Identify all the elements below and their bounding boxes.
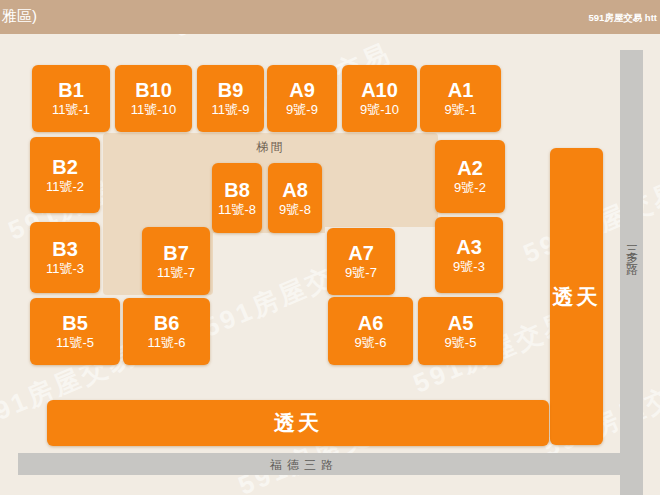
unit-name: A1: [448, 79, 474, 102]
road-right-label: 三多二路: [624, 236, 639, 260]
unit-block-b2[interactable]: B211號-2: [30, 137, 100, 213]
unit-block-a6[interactable]: A69號-6: [328, 297, 413, 365]
unit-number-label: 11號-10: [131, 102, 176, 118]
unit-number-label: 11號-7: [157, 265, 195, 281]
unit-name: A3: [456, 236, 482, 259]
unit-name: B5: [62, 312, 88, 335]
unit-name: B1: [58, 79, 84, 102]
unit-name: B2: [52, 156, 78, 179]
header-title: 雅區): [2, 7, 37, 26]
road-bottom-label: 福德三路: [270, 457, 338, 474]
unit-name: A2: [457, 157, 483, 180]
unit-number-label: 9號-1: [445, 102, 477, 118]
unit-number-label: 11號-8: [218, 202, 256, 218]
unit-name: B10: [135, 79, 172, 102]
header-bar: 雅區) 591房屋交易 htt: [0, 0, 660, 34]
unit-name: A10: [361, 79, 398, 102]
unit-block-a9[interactable]: A99號-9: [267, 65, 337, 132]
unit-name: B3: [52, 238, 78, 261]
unit-block-a3[interactable]: A39號-3: [435, 217, 503, 293]
site-map: 591房屋交易591房屋交易591房屋交易591房屋交易591房屋交易591房屋…: [0, 0, 660, 495]
unit-block-b10[interactable]: B1011號-10: [115, 65, 192, 132]
unit-name: B9: [218, 79, 244, 102]
unit-name: B8: [224, 179, 250, 202]
unit-number-label: 9號-2: [454, 180, 486, 196]
unit-block-b1[interactable]: B111號-1: [32, 65, 110, 132]
unit-block-b9[interactable]: B911號-9: [197, 65, 264, 132]
unit-number-label: 9號-5: [445, 335, 477, 351]
unit-number-label: 11號-9: [211, 102, 249, 118]
unit-number-label: 9號-10: [360, 102, 399, 118]
unit-name: A5: [448, 312, 474, 335]
unit-block-a5[interactable]: A59號-5: [418, 297, 503, 365]
unit-block-b7[interactable]: B711號-7: [142, 227, 210, 295]
unit-block-b8[interactable]: B811號-8: [212, 163, 262, 233]
unit-number-label: 9號-8: [279, 202, 311, 218]
stairwell-label: 梯間: [103, 139, 438, 156]
unit-name: A6: [358, 312, 384, 335]
unit-name: B7: [163, 242, 189, 265]
header-url-text: 591房屋交易 htt: [588, 12, 657, 25]
unit-number-label: 11號-3: [46, 261, 84, 277]
unit-name: A9: [289, 79, 315, 102]
unit-block-a8[interactable]: A89號-8: [268, 163, 322, 233]
townhouse-block-bottom[interactable]: 透天: [47, 400, 549, 446]
unit-name: B6: [154, 312, 180, 335]
unit-number-label: 11號-5: [56, 335, 94, 351]
townhouse-block-right[interactable]: 透天: [550, 148, 603, 445]
road-right: [620, 50, 643, 495]
unit-number-label: 9號-3: [453, 259, 485, 275]
unit-number-label: 11號-1: [52, 102, 90, 118]
unit-block-a1[interactable]: A19號-1: [420, 65, 501, 132]
unit-number-label: 9號-6: [355, 335, 387, 351]
courtyard-area: [325, 163, 438, 227]
unit-block-b6[interactable]: B611號-6: [123, 298, 210, 365]
unit-number-label: 9號-9: [286, 102, 318, 118]
unit-block-a7[interactable]: A79號-7: [327, 228, 395, 295]
unit-number-label: 11號-6: [147, 335, 185, 351]
unit-name: A7: [348, 242, 374, 265]
unit-number-label: 11號-2: [46, 179, 84, 195]
unit-block-a2[interactable]: A29號-2: [435, 140, 505, 213]
unit-block-b3[interactable]: B311號-3: [30, 222, 100, 293]
unit-number-label: 9號-7: [345, 265, 377, 281]
unit-block-a10[interactable]: A109號-10: [342, 65, 417, 132]
unit-name: A8: [282, 179, 308, 202]
unit-block-b5[interactable]: B511號-5: [30, 298, 120, 365]
